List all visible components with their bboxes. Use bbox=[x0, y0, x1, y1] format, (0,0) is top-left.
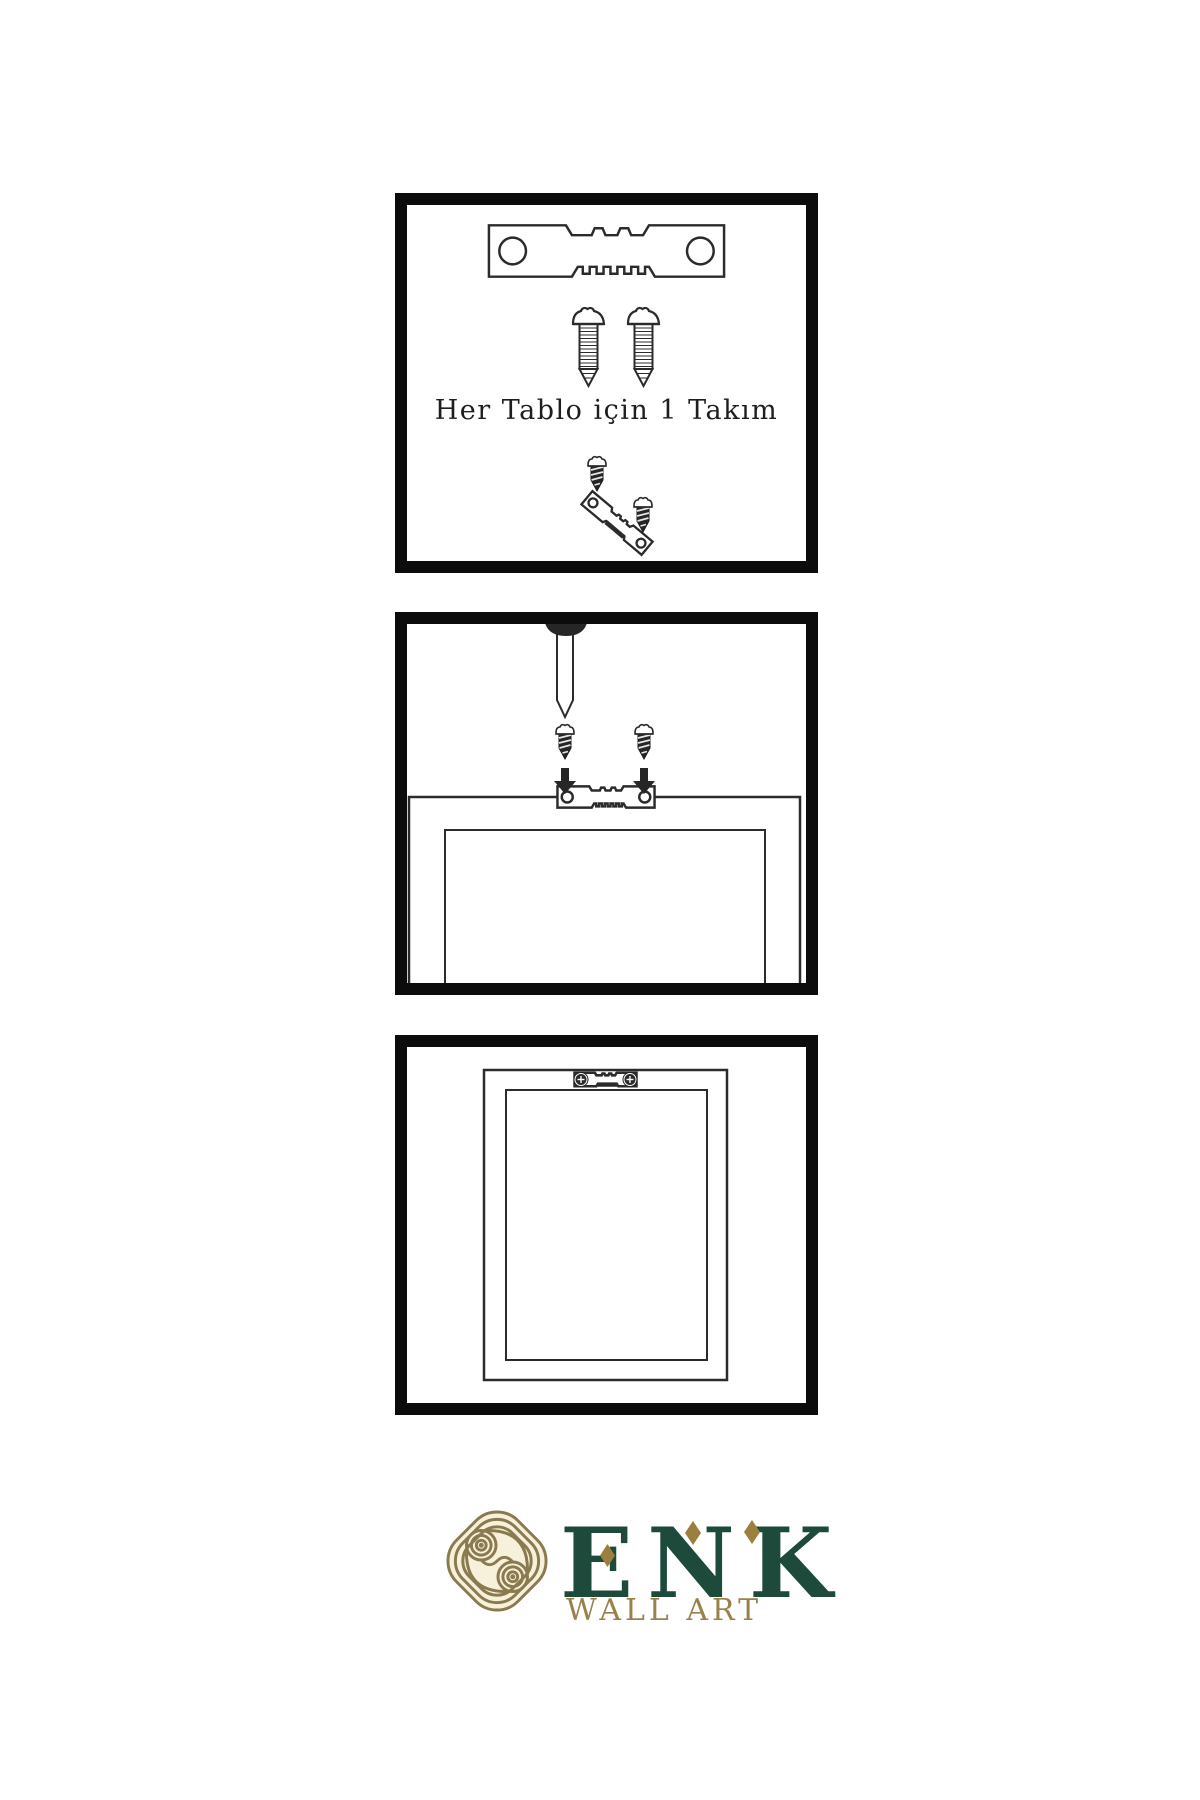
nail-icon bbox=[545, 624, 587, 717]
panel-wall-installation bbox=[395, 612, 818, 995]
kit-caption: Her Tablo için 1 Takım bbox=[407, 395, 806, 426]
brand-subtitle: WALL ART bbox=[566, 1593, 762, 1628]
screw-head-icon bbox=[623, 1073, 637, 1087]
hardware-kit-drawing bbox=[407, 205, 806, 561]
screw-icon-small bbox=[588, 457, 606, 491]
mounted-frame-drawing bbox=[407, 1047, 806, 1403]
instruction-sheet: Her Tablo için 1 Takım bbox=[0, 0, 1200, 1800]
screw-icon-small bbox=[635, 725, 653, 759]
screw-icon bbox=[573, 308, 604, 386]
knot-logo-icon bbox=[433, 1497, 561, 1625]
panel-hardware-kit: Her Tablo için 1 Takım bbox=[395, 193, 818, 573]
screw-icon bbox=[628, 308, 659, 386]
screw-head-icon bbox=[574, 1073, 588, 1087]
screw-icon-small bbox=[556, 725, 574, 759]
sawtooth-hanger-icon bbox=[557, 786, 654, 807]
frame-inner-outline bbox=[506, 1090, 707, 1360]
sawtooth-hanger-icon bbox=[489, 225, 724, 276]
frame-inner-outline bbox=[445, 830, 765, 983]
panel-mounted-frame bbox=[395, 1035, 818, 1415]
installation-drawing bbox=[407, 624, 806, 983]
